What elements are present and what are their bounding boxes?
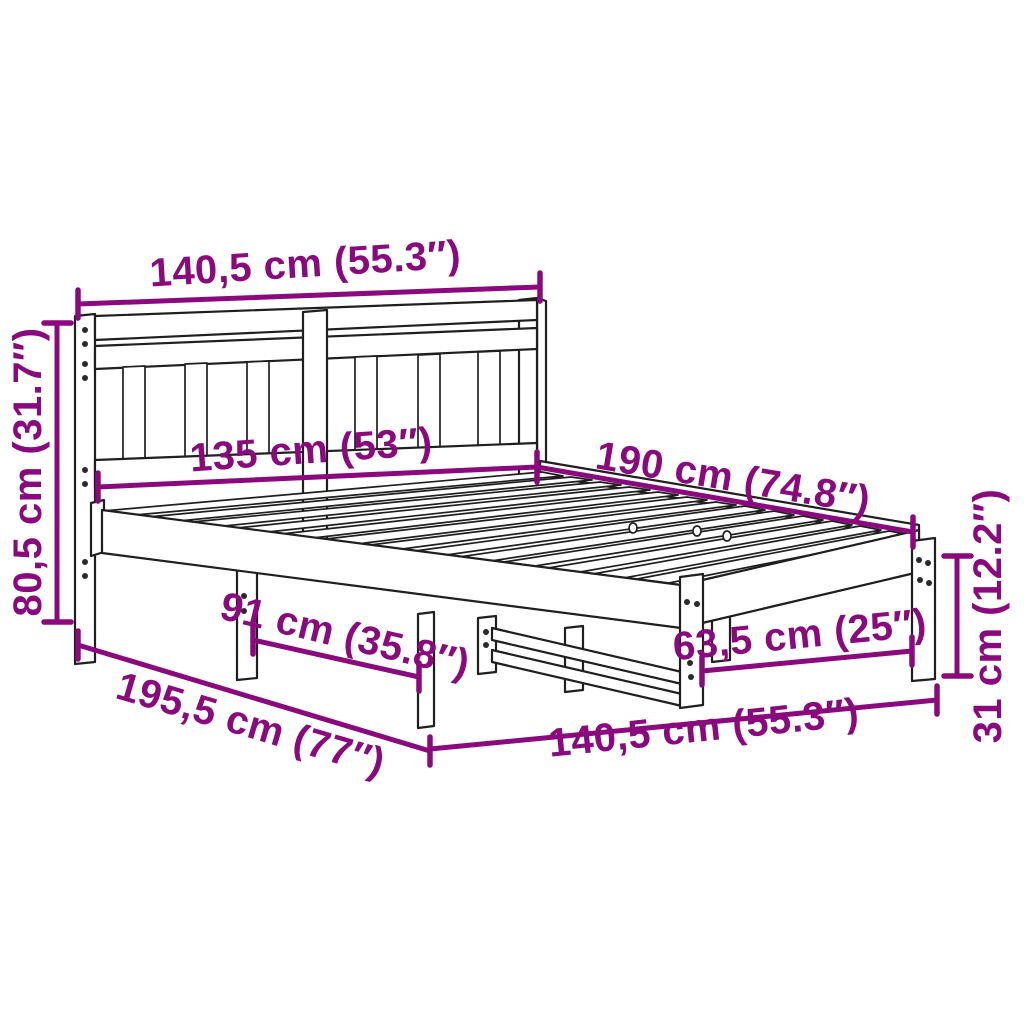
headboard-slat (478, 351, 500, 446)
slat-holder-peg (723, 531, 731, 541)
diagram-canvas: 140,5 cm (55.3″) 80,5 cm (31.7″) 135 cm … (0, 0, 1024, 1024)
headboard-height-label: 80,5 cm (31.7″) (6, 327, 50, 616)
dimension-frame-height: 31 cm (12.2″) (944, 489, 1010, 744)
headboard-right-post-side (537, 298, 546, 474)
frame-height-label: 31 cm (12.2″) (966, 489, 1010, 744)
headboard-slat (123, 366, 145, 459)
top-width-label: 140,5 cm (55.3″) (148, 233, 462, 296)
slat-holder-peg (693, 526, 701, 536)
bed-frame-dimension-diagram: 140,5 cm (55.3″) 80,5 cm (31.7″) 135 cm … (0, 0, 1024, 1024)
dimension-headboard-height: 80,5 cm (31.7″) (6, 323, 71, 622)
slat-holder-peg (629, 523, 637, 533)
